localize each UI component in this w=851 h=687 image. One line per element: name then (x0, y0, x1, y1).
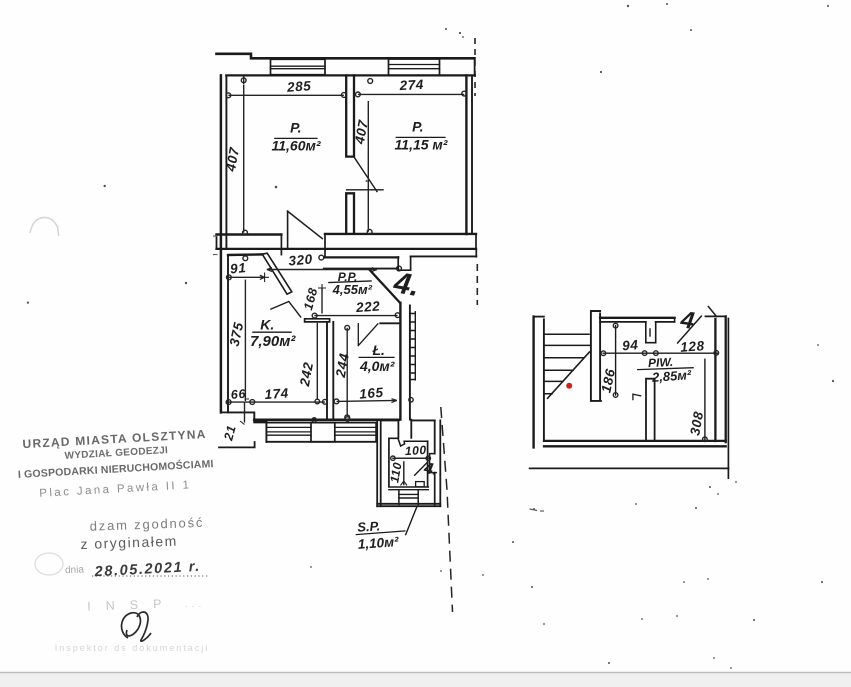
svg-text:...: ... (185, 599, 205, 610)
svg-text:4.: 4. (422, 460, 439, 479)
svg-text:S.P.: S.P. (357, 518, 381, 535)
svg-text:94: 94 (622, 337, 639, 353)
svg-text:7,90м²: 7,90м² (250, 333, 296, 350)
svg-text:100: 100 (405, 443, 428, 458)
svg-text:320: 320 (288, 251, 314, 268)
svg-text:z oryginałem: z oryginałem (80, 533, 178, 552)
svg-text:128: 128 (680, 338, 705, 355)
svg-text:Ł.: Ł. (371, 342, 384, 358)
svg-text:91: 91 (229, 260, 246, 276)
svg-text:274: 274 (398, 77, 424, 93)
svg-text:1,10м²: 1,10м² (357, 534, 399, 552)
svg-text:P.: P. (412, 119, 423, 135)
svg-text:11,15 м²: 11,15 м² (395, 137, 448, 153)
svg-text:285: 285 (286, 78, 312, 95)
svg-text:4,0м²: 4,0м² (359, 358, 395, 374)
svg-text:4,55м²: 4,55м² (332, 282, 373, 297)
svg-text:165: 165 (359, 385, 385, 402)
svg-text:11,60м²: 11,60м² (271, 138, 320, 154)
svg-text:P.: P. (290, 120, 301, 136)
svg-text:2,85м²: 2,85м² (650, 367, 692, 385)
svg-text:dnia: dnia (65, 564, 85, 576)
svg-text:222: 222 (355, 298, 381, 315)
svg-text:174: 174 (264, 385, 289, 402)
svg-text:66: 66 (230, 387, 246, 402)
svg-text:Inspektor ds dokumentacji: Inspektor ds dokumentacji (55, 643, 210, 653)
svg-text:K.: K. (260, 317, 274, 333)
